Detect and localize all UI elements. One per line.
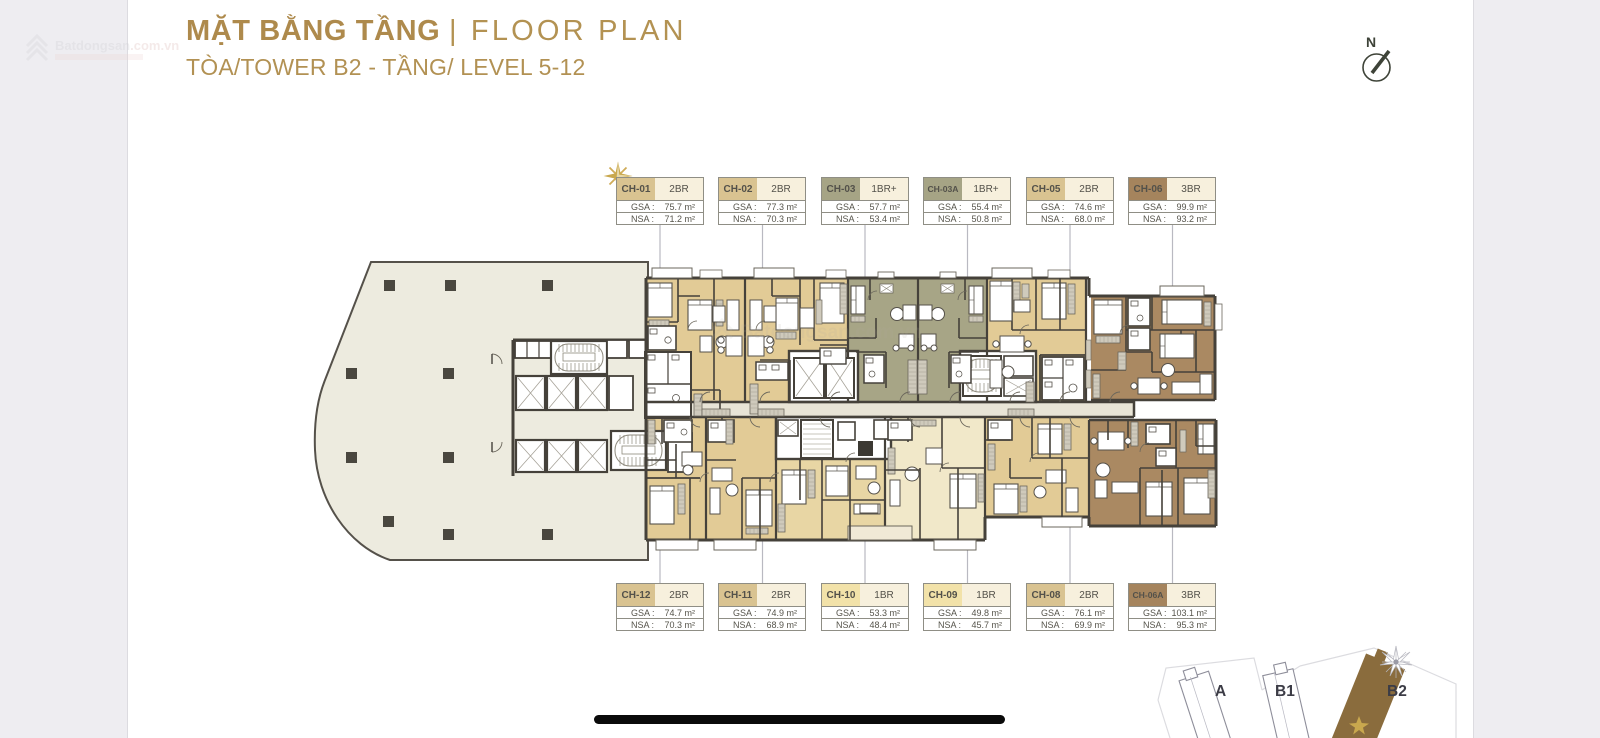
svg-text:A: A bbox=[1215, 683, 1226, 700]
svg-text:N: N bbox=[1366, 34, 1376, 50]
svg-text:B1: B1 bbox=[1275, 683, 1295, 700]
svg-text:Batdongsan.com.vn: Batdongsan.com.vn bbox=[55, 38, 179, 53]
svg-text:B2: B2 bbox=[1387, 683, 1407, 700]
